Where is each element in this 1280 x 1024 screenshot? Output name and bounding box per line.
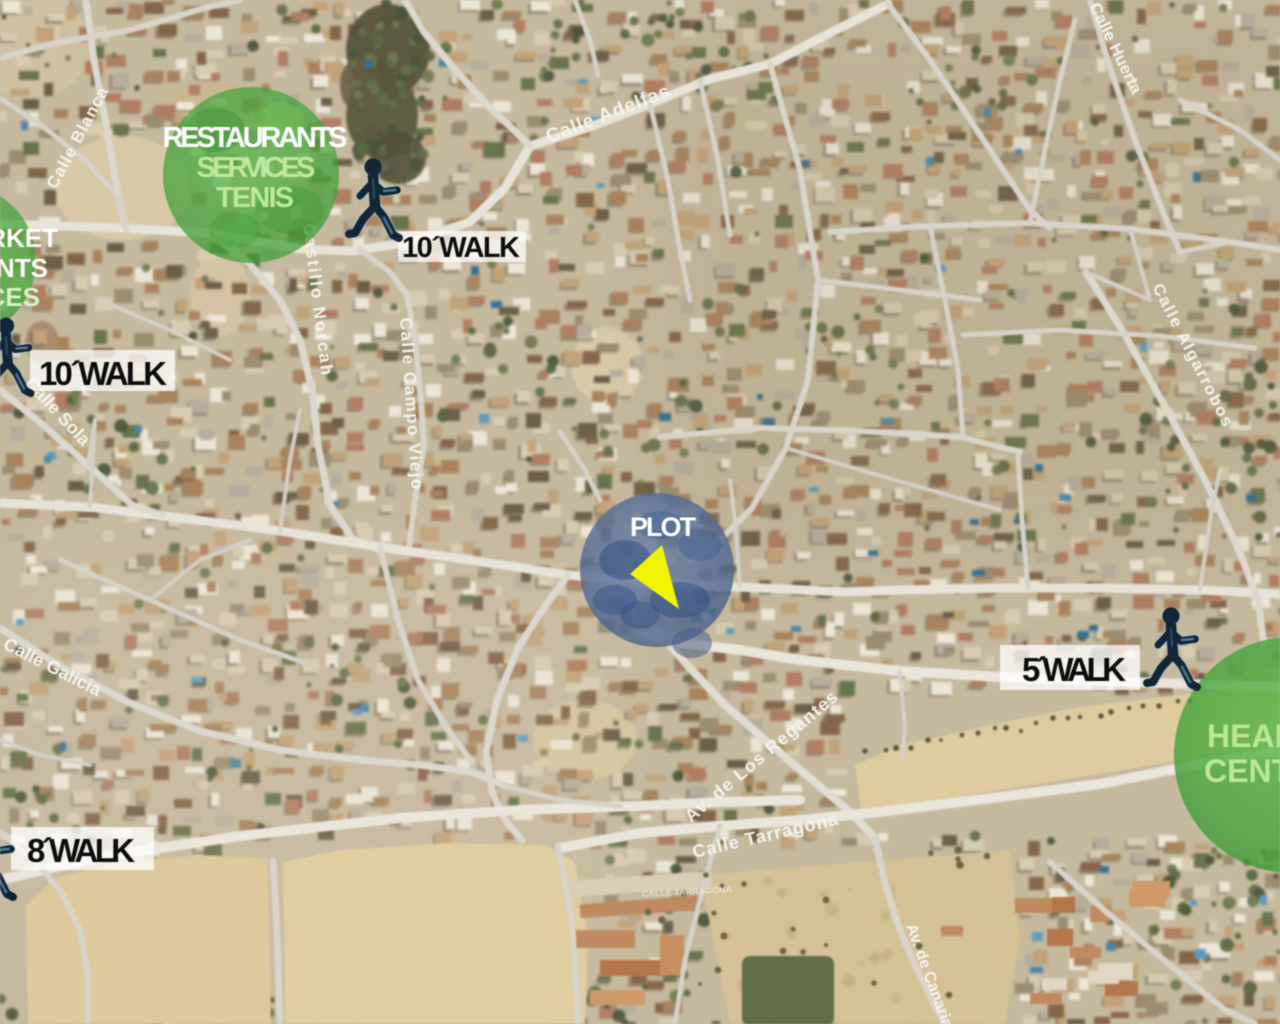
svg-text:10´WALK: 10´WALK [39, 355, 167, 392]
svg-text:RESTAURANTS: RESTAURANTS [163, 122, 348, 154]
svg-text:TENIS: TENIS [216, 182, 294, 214]
svg-text:SERVICES: SERVICES [0, 282, 40, 312]
svg-text:HEALTH: HEALTH [1207, 718, 1280, 754]
svg-text:8´WALK: 8´WALK [27, 832, 135, 869]
svg-text:CENTER: CENTER [1204, 753, 1280, 789]
svg-text:5´WALK: 5´WALK [1022, 651, 1126, 688]
svg-text:SERVICES: SERVICES [197, 152, 316, 184]
svg-text:PLOT: PLOT [630, 512, 697, 542]
svg-text:MARKET: MARKET [0, 223, 58, 253]
svg-text:RESTAURANTS: RESTAURANTS [0, 253, 48, 283]
svg-text:10´WALK: 10´WALK [402, 232, 520, 264]
